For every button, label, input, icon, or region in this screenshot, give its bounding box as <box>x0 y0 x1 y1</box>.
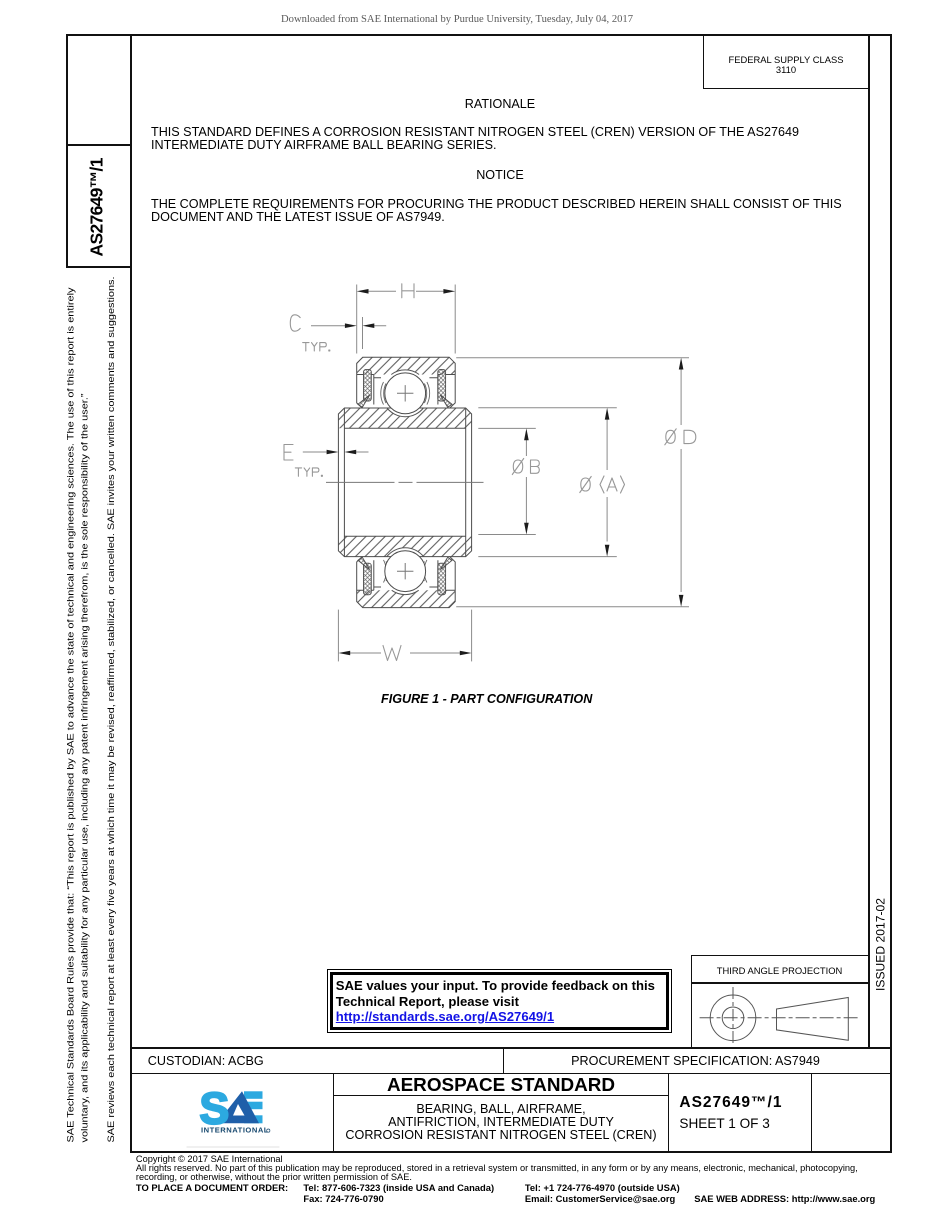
svg-text:AS27649™/1: AS27649™/1 <box>87 157 107 256</box>
svg-text:ISSUED 2017-02: ISSUED 2017-02 <box>873 898 887 991</box>
svg-text:SAE reviews each technical rep: SAE reviews each technical report at lea… <box>106 277 116 1143</box>
svg-text:SAE Technical Standards Board: SAE Technical Standards Board Rules prov… <box>66 287 76 1143</box>
svg-text:INTERNATIONAL: INTERNATIONAL <box>201 1125 269 1134</box>
svg-text:voluntary, and its applicabili: voluntary, and its applicability and sui… <box>80 393 90 1142</box>
